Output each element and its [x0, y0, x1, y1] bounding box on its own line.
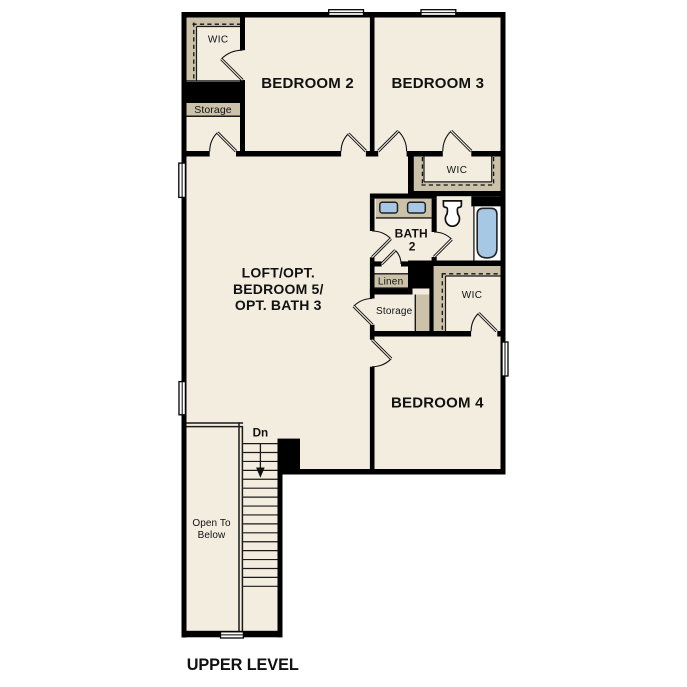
svg-text:Dn: Dn: [253, 427, 269, 440]
svg-text:BEDROOM 4: BEDROOM 4: [391, 395, 484, 412]
svg-text:BEDROOM 5/: BEDROOM 5/: [233, 281, 324, 297]
svg-text:WIC: WIC: [447, 165, 468, 176]
svg-text:Storage: Storage: [194, 104, 232, 116]
svg-text:Below: Below: [198, 530, 226, 541]
svg-text:BEDROOM 2: BEDROOM 2: [261, 75, 354, 92]
svg-text:UPPER LEVEL: UPPER LEVEL: [187, 656, 299, 674]
svg-text:Linen: Linen: [378, 276, 403, 287]
svg-text:BEDROOM 3: BEDROOM 3: [391, 75, 484, 92]
svg-text:LOFT/OPT.: LOFT/OPT.: [242, 265, 315, 281]
svg-text:OPT. BATH 3: OPT. BATH 3: [235, 297, 322, 313]
svg-text:WIC: WIC: [208, 34, 229, 45]
svg-text:Storage: Storage: [376, 306, 413, 317]
svg-text:Open To: Open To: [192, 518, 231, 529]
svg-text:2: 2: [409, 240, 416, 254]
svg-text:WIC: WIC: [462, 290, 483, 301]
svg-text:BATH: BATH: [395, 227, 428, 241]
